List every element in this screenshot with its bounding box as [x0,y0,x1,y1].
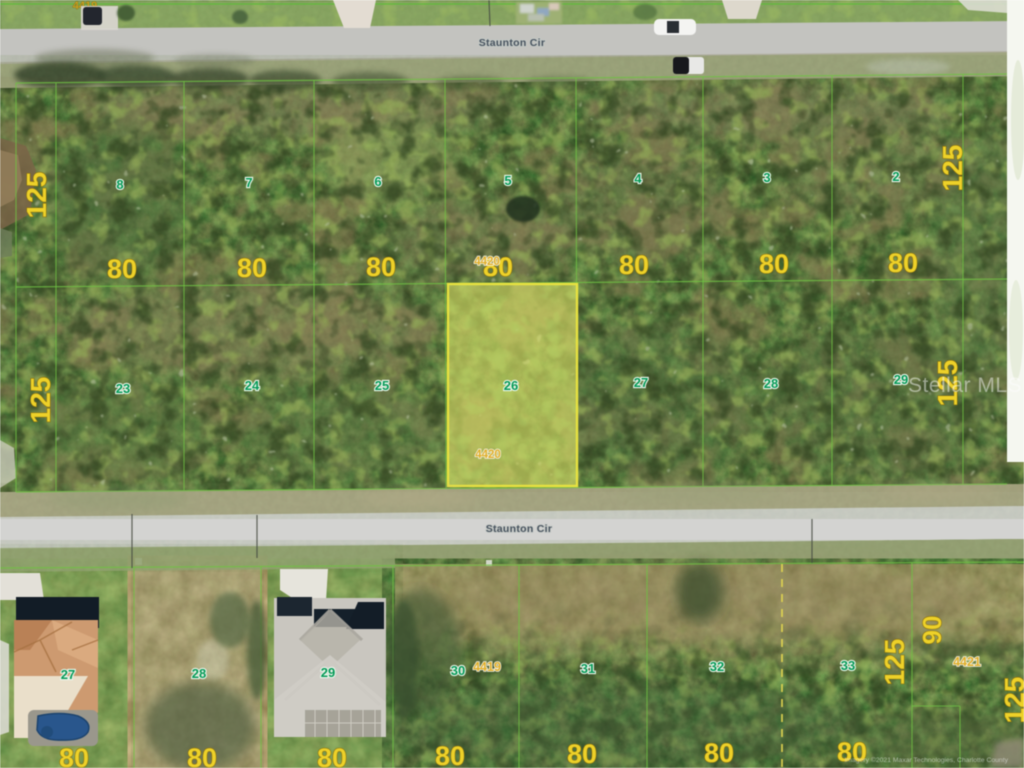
svg-text:3: 3 [763,170,770,185]
svg-text:80: 80 [366,252,396,282]
svg-text:80: 80 [107,254,137,284]
svg-text:125: 125 [21,172,52,219]
svg-text:27: 27 [61,667,75,682]
svg-text:25: 25 [375,378,389,393]
svg-text:80: 80 [435,741,465,768]
svg-text:29: 29 [894,372,908,387]
svg-text:80: 80 [187,743,217,768]
svg-text:125: 125 [937,145,968,192]
svg-text:4420: 4420 [475,449,501,461]
svg-text:5: 5 [504,173,511,188]
svg-text:2: 2 [892,169,899,184]
svg-text:27: 27 [634,375,648,390]
svg-text:4419: 4419 [473,660,501,674]
svg-text:80: 80 [59,743,89,768]
svg-text:80: 80 [567,739,597,768]
svg-text:80: 80 [317,743,347,768]
svg-text:Imagery ©2021 Maxar Technologi: Imagery ©2021 Maxar Technologies, Charlo… [844,756,1008,764]
svg-text:29: 29 [321,665,335,680]
svg-text:80: 80 [237,253,267,283]
svg-text:80: 80 [619,250,649,280]
svg-text:7: 7 [245,175,252,190]
svg-text:32: 32 [710,659,724,674]
svg-text:4421: 4421 [953,655,981,669]
svg-text:26: 26 [504,378,518,393]
svg-text:30: 30 [451,663,465,678]
svg-text:125: 125 [25,377,56,424]
svg-text:33: 33 [841,658,855,673]
svg-text:31: 31 [581,661,595,676]
svg-text:8: 8 [116,177,123,192]
svg-text:28: 28 [764,376,778,391]
svg-text:125: 125 [999,677,1024,724]
svg-text:125: 125 [879,639,910,686]
svg-text:28: 28 [192,666,206,681]
svg-text:Stellar MLS: Stellar MLS [908,374,1022,397]
svg-text:80: 80 [759,249,789,279]
svg-text:90: 90 [917,616,947,645]
svg-text:23: 23 [116,381,130,396]
svg-text:80: 80 [888,248,918,278]
svg-text:Staunton Cir: Staunton Cir [486,523,553,535]
svg-text:24: 24 [245,378,260,393]
svg-text:Staunton Cir: Staunton Cir [479,37,546,49]
svg-text:4: 4 [634,171,642,186]
svg-text:80: 80 [704,738,734,768]
svg-text:6: 6 [374,174,381,189]
svg-text:4420: 4420 [474,256,500,268]
